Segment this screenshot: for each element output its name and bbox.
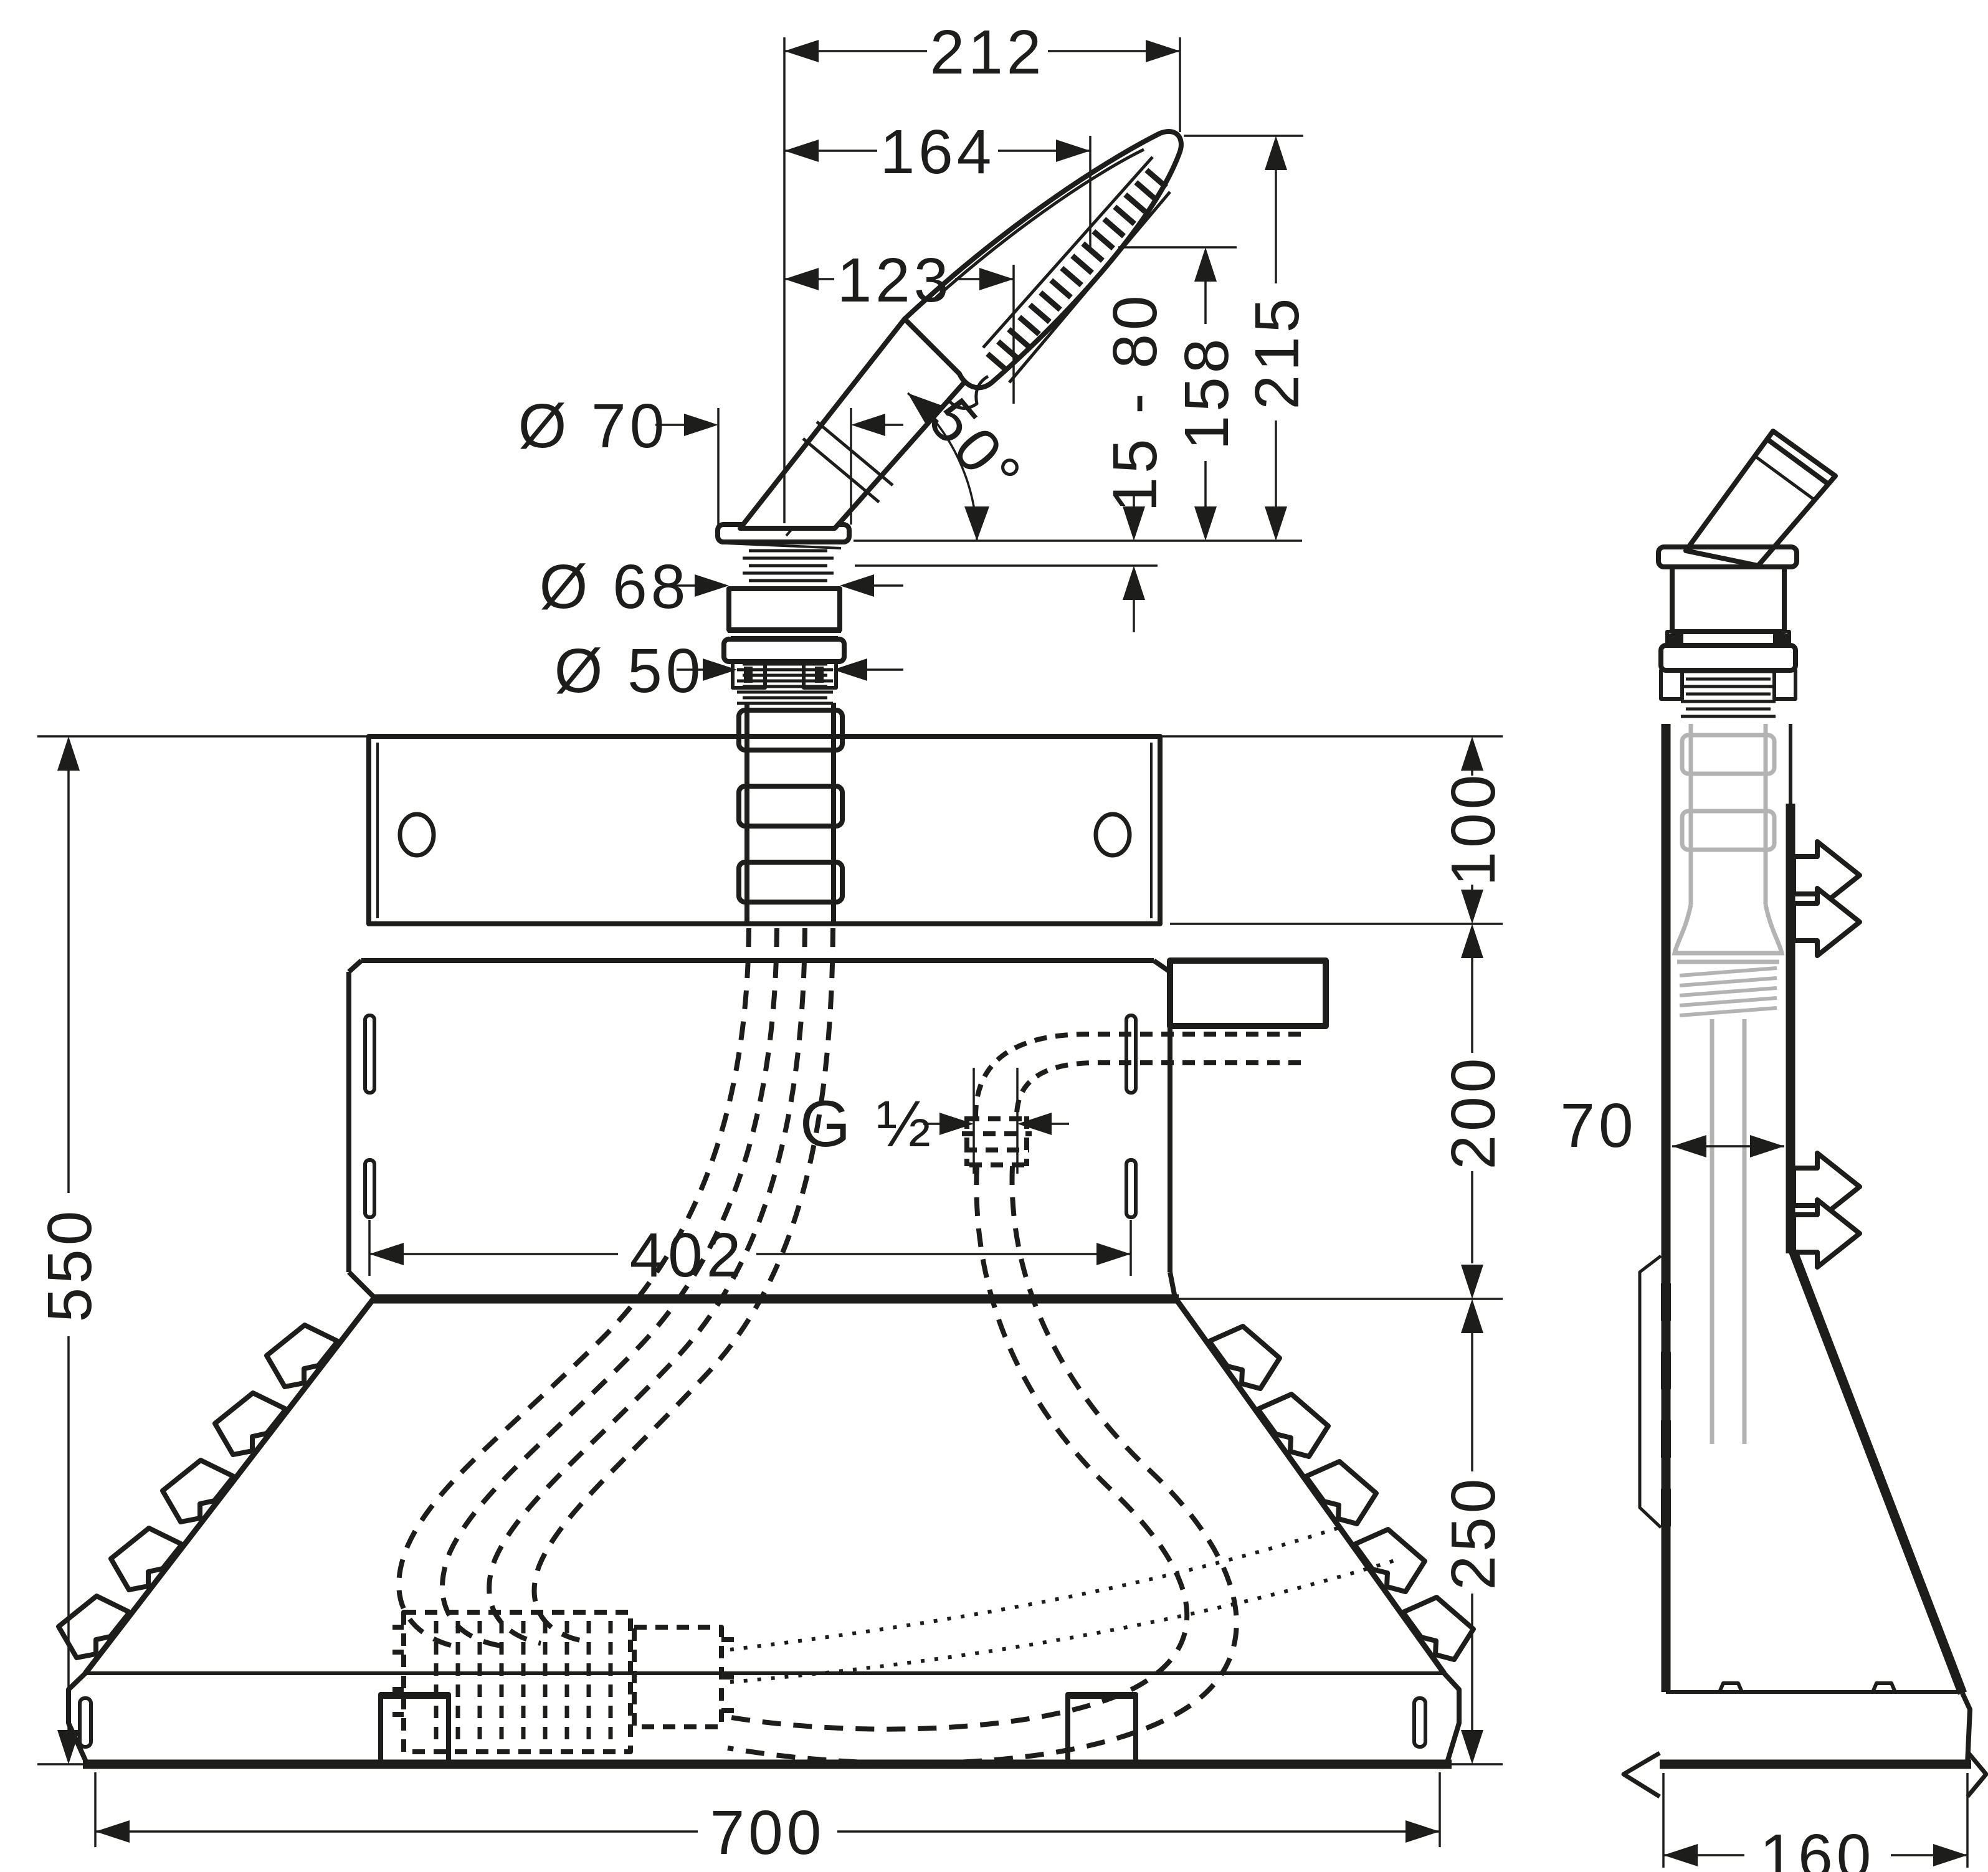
dim-dia-68: Ø 68 (540, 552, 903, 622)
dim-side-70: 70 (1560, 1091, 1784, 1161)
flange-nut (729, 589, 840, 630)
wall-plate (369, 736, 1160, 924)
drawing-page: 212 164 123 215 158 (0, 0, 1988, 1872)
mounting-slot (365, 1160, 374, 1217)
pullout-path (730, 1528, 1339, 1650)
mounting-slot (365, 1015, 374, 1093)
retaining-hook (215, 1393, 286, 1455)
dim-label-200: 200 (1439, 1055, 1508, 1170)
dim-label-dia70: Ø 70 (518, 391, 668, 461)
dim-label-15-80: 15 - 80 (1100, 292, 1170, 511)
dim-label-402: 402 (630, 1220, 745, 1290)
outlet-spout (1170, 961, 1326, 1026)
dim-label-158: 158 (1172, 335, 1242, 450)
base-slot (80, 1698, 91, 1747)
dim-label-g-half: G ½ (800, 1088, 935, 1161)
side-hook (1794, 1200, 1860, 1267)
technical-drawing: 212 164 123 215 158 (0, 0, 1988, 1872)
dim-range-15-80: 15 - 80 (1100, 292, 1170, 632)
g-half-elbow (976, 1034, 1301, 1116)
dim-label-123: 123 (837, 245, 953, 315)
dim-label-side-70: 70 (1560, 1091, 1637, 1161)
dim-label-dia50: Ø 50 (554, 636, 705, 706)
retaining-hook (1403, 1597, 1473, 1660)
retaining-hook (1306, 1461, 1376, 1524)
dim-angle-50: 50° (908, 385, 1037, 541)
base-plate (69, 1673, 1459, 1764)
retaining-hooks-right (1209, 1326, 1473, 1660)
locking-ring (724, 639, 844, 662)
dim-height-215: 215 (1242, 136, 1312, 541)
retaining-hook (111, 1528, 182, 1590)
side-view (1624, 431, 1986, 1797)
side-internals-hidden (1675, 724, 1782, 1444)
side-retaining-hooks (1794, 842, 1860, 1267)
retaining-hook (163, 1460, 234, 1522)
mounting-hole-right (1096, 814, 1130, 855)
dim-width-164: 164 (784, 117, 1090, 187)
base-clip (1624, 1753, 1660, 1797)
side-hook (1794, 888, 1860, 956)
dim-label-160: 160 (1760, 1822, 1875, 1872)
escutcheon-assembly (718, 525, 849, 703)
dim-label-215: 215 (1242, 295, 1312, 410)
dim-label-212: 212 (930, 17, 1045, 87)
base-clip (1967, 1752, 1986, 1797)
dim-dia-50: Ø 50 (554, 636, 903, 706)
retaining-hooks-left (59, 1325, 338, 1658)
mounting-slot (1126, 1160, 1136, 1217)
dim-side-160: 160 (1663, 1822, 1967, 1872)
retaining-hook (1258, 1394, 1328, 1456)
hose-coupling (634, 1627, 721, 1727)
side-base (1624, 1251, 1986, 1797)
dim-label-dia68: Ø 68 (540, 552, 690, 622)
dim-height-158: 158 (1172, 247, 1242, 541)
retaining-hook (267, 1325, 338, 1387)
side-escutcheon (1658, 547, 1797, 716)
pullout-path (730, 1559, 1401, 1682)
retaining-hook (1209, 1326, 1280, 1389)
support-foot (1068, 1694, 1136, 1764)
mounting-hole-left (400, 814, 434, 855)
dim-width-212: 212 (784, 17, 1180, 87)
dim-width-700: 700 (95, 1798, 1440, 1868)
dim-label-700: 700 (710, 1798, 825, 1868)
dim-label-164: 164 (880, 117, 996, 187)
mounting-slot (1126, 1015, 1136, 1093)
dim-label-100: 100 (1439, 771, 1508, 886)
side-channel (1640, 724, 1791, 1692)
base-slot (1414, 1698, 1425, 1747)
dim-label-250: 250 (1439, 1475, 1508, 1590)
dim-label-550: 550 (35, 1207, 105, 1323)
